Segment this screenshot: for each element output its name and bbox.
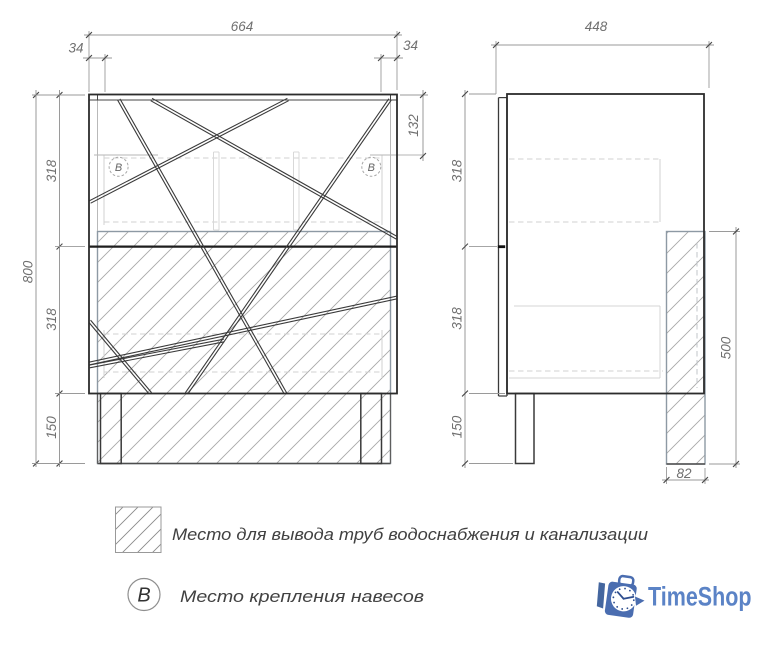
svg-text:34: 34 [68, 41, 83, 56]
svg-text:318: 318 [44, 159, 59, 182]
svg-text:82: 82 [676, 466, 692, 481]
svg-text:B: B [115, 162, 122, 174]
svg-text:150: 150 [450, 415, 465, 438]
svg-text:800: 800 [21, 260, 36, 283]
svg-text:132: 132 [406, 114, 421, 137]
svg-text:448: 448 [585, 19, 608, 34]
svg-text:318: 318 [450, 307, 465, 330]
svg-text:318: 318 [44, 308, 59, 331]
svg-text:500: 500 [719, 336, 734, 359]
svg-text:150: 150 [44, 416, 59, 439]
svg-text:34: 34 [403, 38, 418, 53]
svg-text:B: B [137, 585, 150, 607]
svg-text:TimeShop: TimeShop [648, 582, 752, 612]
svg-text:Место для вывода труб водоснаб: Место для вывода труб водоснабжения и ка… [172, 525, 649, 544]
svg-text:318: 318 [450, 159, 465, 182]
svg-text:B: B [368, 162, 375, 174]
svg-text:Место крепления навесов: Место крепления навесов [180, 587, 424, 606]
svg-text:664: 664 [231, 19, 254, 34]
